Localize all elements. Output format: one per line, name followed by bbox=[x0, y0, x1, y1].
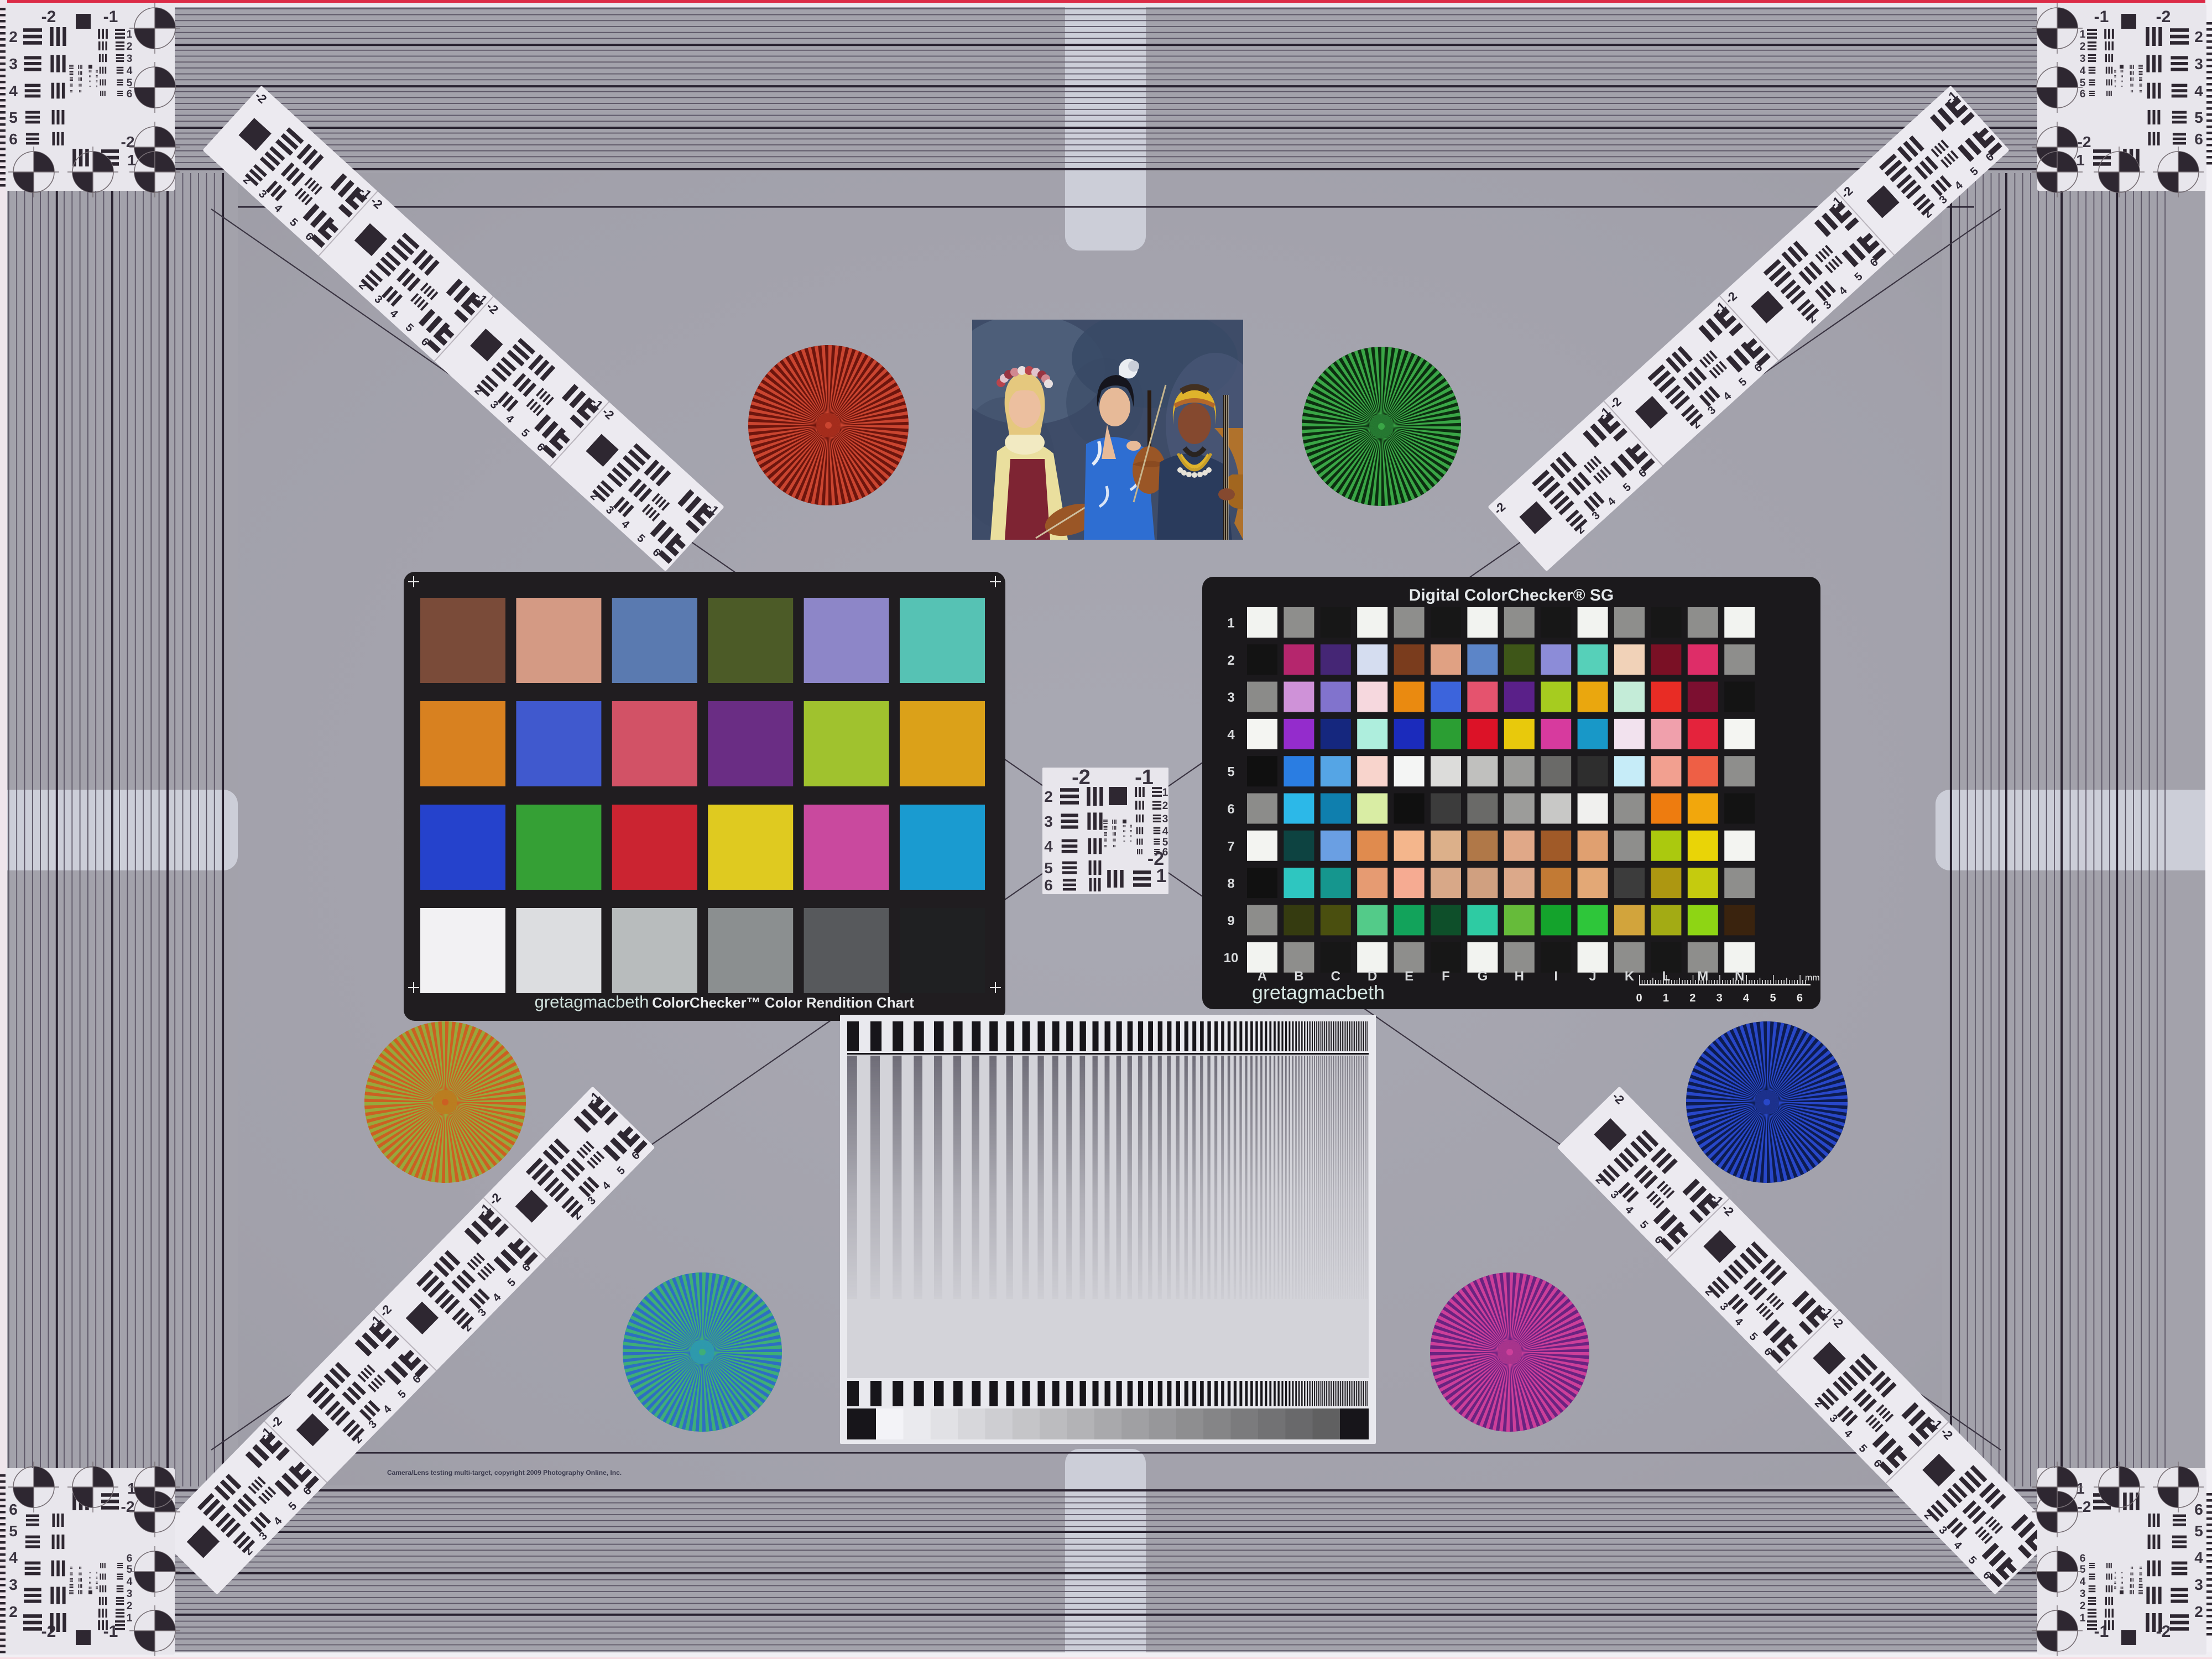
svg-text:N: N bbox=[1735, 969, 1744, 984]
svg-text:Camera/Lens testing multi-targ: Camera/Lens testing multi-target, copyri… bbox=[387, 1469, 622, 1477]
svg-text:-2: -2 bbox=[2078, 1498, 2091, 1515]
svg-text:6: 6 bbox=[9, 1501, 18, 1518]
svg-text:1: 1 bbox=[127, 1613, 133, 1624]
svg-text:-1: -1 bbox=[103, 8, 118, 26]
svg-text:0: 0 bbox=[1636, 992, 1642, 1004]
svg-text:2: 2 bbox=[127, 41, 133, 53]
svg-text:5: 5 bbox=[1227, 765, 1234, 780]
svg-text:6: 6 bbox=[127, 88, 133, 100]
svg-text:3: 3 bbox=[9, 55, 18, 72]
svg-text:2: 2 bbox=[127, 1600, 133, 1612]
svg-text:10: 10 bbox=[1224, 951, 1239, 966]
svg-text:6: 6 bbox=[127, 1553, 133, 1564]
svg-text:-1: -1 bbox=[2094, 8, 2109, 26]
svg-text:1: 1 bbox=[127, 29, 133, 40]
svg-text:5: 5 bbox=[9, 1522, 18, 1540]
svg-text:2: 2 bbox=[2194, 28, 2203, 45]
svg-text:4: 4 bbox=[2080, 65, 2086, 77]
svg-text:K: K bbox=[1625, 969, 1635, 984]
svg-text:4: 4 bbox=[1162, 826, 1168, 837]
svg-text:2: 2 bbox=[1689, 992, 1695, 1004]
svg-text:5: 5 bbox=[2194, 1522, 2203, 1540]
svg-text:F: F bbox=[1442, 969, 1450, 984]
svg-text:3: 3 bbox=[9, 1576, 18, 1593]
svg-text:3: 3 bbox=[1227, 690, 1234, 705]
svg-text:4: 4 bbox=[1044, 838, 1053, 855]
svg-text:-2: -2 bbox=[2078, 133, 2091, 150]
svg-text:6: 6 bbox=[1797, 992, 1803, 1004]
svg-text:4: 4 bbox=[1743, 992, 1750, 1004]
svg-text:-2: -2 bbox=[121, 133, 135, 150]
svg-text:6: 6 bbox=[2194, 131, 2203, 148]
svg-text:Digital ColorChecker® SG: Digital ColorChecker® SG bbox=[1409, 586, 1614, 604]
svg-text:1: 1 bbox=[1227, 616, 1234, 631]
svg-text:gretagmacbeth: gretagmacbeth bbox=[1252, 981, 1385, 1004]
svg-text:-1: -1 bbox=[1135, 766, 1154, 789]
svg-text:6: 6 bbox=[2080, 1553, 2086, 1564]
svg-text:8: 8 bbox=[1227, 877, 1234, 891]
svg-text:1: 1 bbox=[2080, 29, 2086, 40]
svg-text:3: 3 bbox=[1717, 992, 1723, 1004]
svg-text:5: 5 bbox=[2194, 109, 2203, 126]
svg-text:5: 5 bbox=[1770, 992, 1776, 1004]
svg-text:mm: mm bbox=[1805, 973, 1820, 983]
svg-text:I: I bbox=[1554, 969, 1558, 984]
svg-text:3: 3 bbox=[2194, 55, 2203, 72]
svg-text:-2: -2 bbox=[41, 1623, 56, 1641]
svg-text:4: 4 bbox=[127, 1576, 133, 1588]
svg-text:H: H bbox=[1515, 969, 1524, 984]
svg-text:6: 6 bbox=[2080, 88, 2086, 100]
svg-text:4: 4 bbox=[1227, 727, 1235, 742]
svg-text:2: 2 bbox=[2194, 1603, 2203, 1620]
svg-text:-2: -2 bbox=[41, 8, 56, 26]
svg-text:2: 2 bbox=[2080, 41, 2086, 53]
svg-text:-2: -2 bbox=[2156, 8, 2171, 26]
svg-text:4: 4 bbox=[9, 82, 18, 100]
svg-text:5: 5 bbox=[9, 109, 18, 126]
svg-text:G: G bbox=[1478, 969, 1488, 984]
svg-text:2: 2 bbox=[1044, 788, 1053, 805]
svg-text:2: 2 bbox=[9, 28, 18, 45]
svg-text:3: 3 bbox=[2080, 53, 2086, 65]
svg-text:2: 2 bbox=[9, 1603, 18, 1620]
svg-text:4: 4 bbox=[2080, 1576, 2086, 1588]
svg-text:-2: -2 bbox=[1072, 766, 1091, 789]
svg-text:5: 5 bbox=[2080, 1564, 2086, 1575]
svg-text:3: 3 bbox=[1162, 813, 1168, 825]
svg-text:gretagmacbeth: gretagmacbeth bbox=[535, 992, 649, 1011]
svg-text:3: 3 bbox=[2080, 1588, 2086, 1600]
svg-text:1: 1 bbox=[1663, 992, 1669, 1004]
svg-text:2: 2 bbox=[1227, 653, 1234, 668]
svg-text:J: J bbox=[1589, 969, 1596, 984]
svg-text:2: 2 bbox=[2080, 1600, 2086, 1612]
svg-text:4: 4 bbox=[127, 65, 133, 77]
svg-text:2: 2 bbox=[1162, 800, 1168, 812]
svg-text:3: 3 bbox=[127, 1588, 133, 1600]
svg-text:4: 4 bbox=[2194, 1549, 2203, 1566]
svg-text:1: 1 bbox=[2076, 152, 2085, 169]
svg-text:5: 5 bbox=[127, 1564, 133, 1575]
svg-text:3: 3 bbox=[127, 53, 133, 65]
svg-text:1: 1 bbox=[2080, 1613, 2086, 1624]
svg-text:6: 6 bbox=[2194, 1501, 2203, 1518]
svg-text:4: 4 bbox=[9, 1549, 18, 1566]
svg-text:1: 1 bbox=[1162, 787, 1168, 799]
svg-text:6: 6 bbox=[1044, 877, 1053, 894]
svg-text:9: 9 bbox=[1227, 914, 1234, 928]
svg-text:E: E bbox=[1405, 969, 1413, 984]
svg-text:4: 4 bbox=[2194, 82, 2203, 100]
svg-text:7: 7 bbox=[1227, 839, 1234, 854]
svg-text:3: 3 bbox=[2194, 1576, 2203, 1593]
svg-text:5: 5 bbox=[1044, 859, 1053, 877]
svg-text:-2: -2 bbox=[121, 1498, 135, 1515]
svg-text:-2: -2 bbox=[2156, 1623, 2171, 1641]
svg-text:6: 6 bbox=[1227, 802, 1234, 817]
svg-text:6: 6 bbox=[9, 131, 18, 148]
svg-text:1: 1 bbox=[1156, 865, 1167, 886]
svg-text:ColorChecker™ Color Rendition: ColorChecker™ Color Rendition Chart bbox=[652, 994, 914, 1011]
svg-text:3: 3 bbox=[1044, 813, 1053, 830]
svg-text:1: 1 bbox=[127, 152, 136, 169]
